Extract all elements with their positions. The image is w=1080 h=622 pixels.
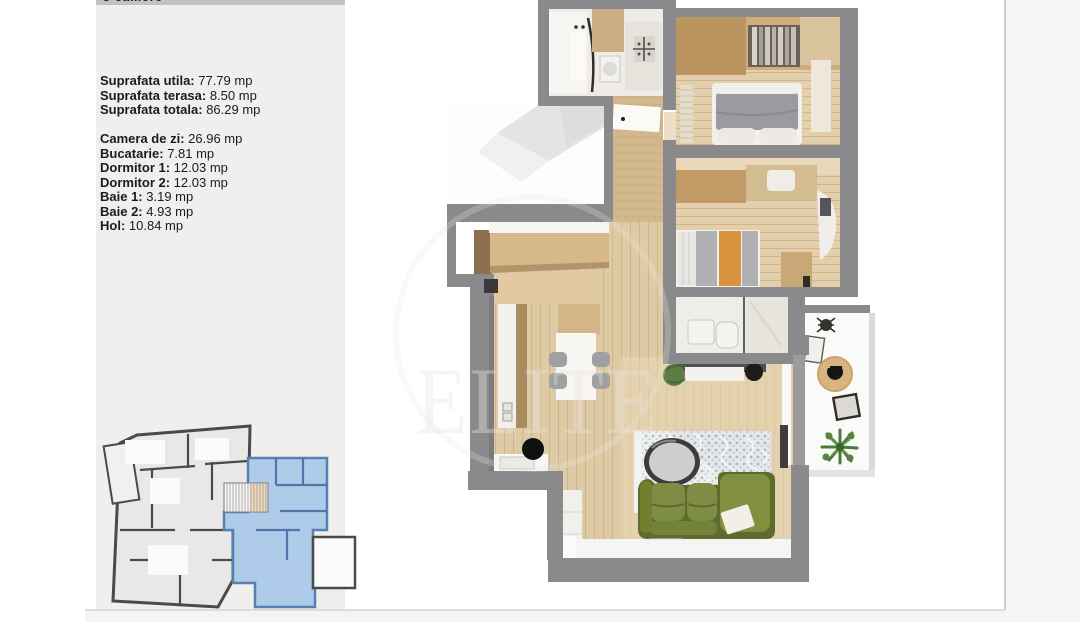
svg-text:ELITE: ELITE	[416, 348, 659, 454]
